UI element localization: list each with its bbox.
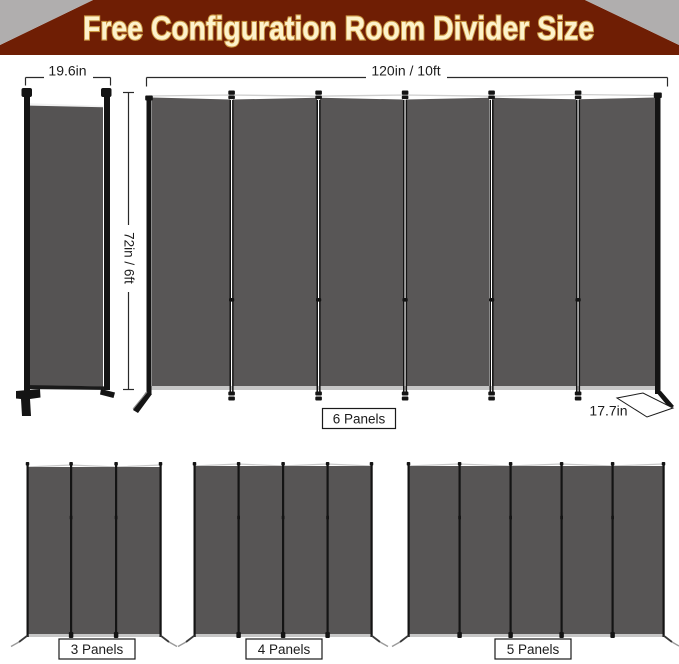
svg-text:3 Panels: 3 Panels — [71, 642, 124, 657]
svg-text:4 Panels: 4 Panels — [258, 642, 311, 657]
svg-text:120in / 10ft: 120in / 10ft — [371, 63, 440, 79]
svg-text:6 Panels: 6 Panels — [333, 412, 386, 427]
svg-text:19.6in: 19.6in — [48, 63, 86, 79]
svg-text:5 Panels: 5 Panels — [507, 642, 560, 657]
svg-text:Free Configuration Room Divide: Free Configuration Room Divider Size — [83, 10, 594, 47]
svg-text:72in / 6ft: 72in / 6ft — [122, 232, 137, 284]
svg-text:17.7in: 17.7in — [589, 403, 627, 419]
